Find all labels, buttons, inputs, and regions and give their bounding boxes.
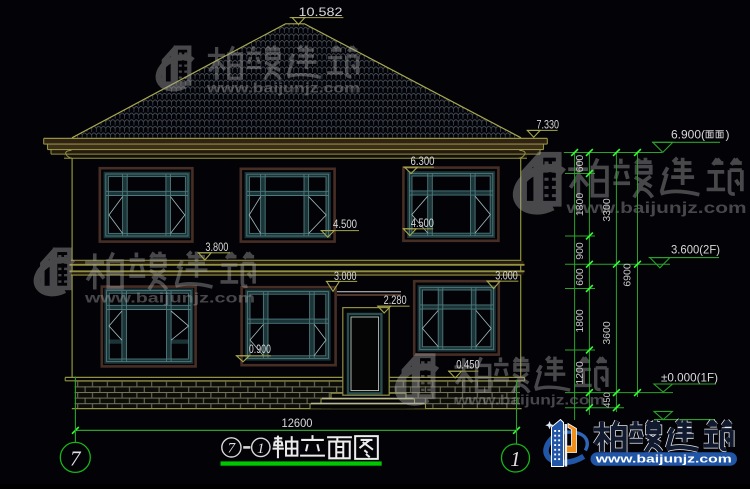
svg-text:4.500: 4.500 xyxy=(333,217,357,231)
svg-text:0.450: 0.450 xyxy=(456,357,480,371)
svg-text:3.000: 3.000 xyxy=(334,269,357,283)
svg-text:3.600(2F): 3.600(2F) xyxy=(671,242,720,256)
svg-text:1200: 1200 xyxy=(574,361,586,385)
svg-text:7.330: 7.330 xyxy=(537,118,560,132)
svg-text:4.500: 4.500 xyxy=(411,216,434,230)
svg-text:450: 450 xyxy=(602,392,613,408)
svg-text:600: 600 xyxy=(574,268,586,286)
svg-text:6900: 6900 xyxy=(622,263,634,287)
svg-text:www.baijunjz.com: www.baijunjz.com xyxy=(594,454,732,466)
svg-text:600: 600 xyxy=(574,155,586,173)
svg-text:3300: 3300 xyxy=(601,198,613,222)
svg-text:): ) xyxy=(726,128,730,142)
svg-text:1: 1 xyxy=(510,447,521,471)
svg-text:±0.000(1F): ±0.000(1F) xyxy=(661,370,718,384)
svg-text:900: 900 xyxy=(574,242,586,260)
svg-text:1800: 1800 xyxy=(574,193,586,217)
svg-text:1800: 1800 xyxy=(574,309,586,333)
svg-text:3.800: 3.800 xyxy=(205,240,228,254)
svg-text:2.280: 2.280 xyxy=(384,293,407,307)
svg-text:3600: 3600 xyxy=(601,321,613,345)
svg-text:6.900(: 6.900( xyxy=(671,128,705,142)
svg-text:www.baijunjz.com: www.baijunjz.com xyxy=(206,81,360,96)
svg-text:7: 7 xyxy=(70,447,82,471)
svg-text:12600: 12600 xyxy=(282,416,313,430)
svg-text:3.000: 3.000 xyxy=(495,268,518,282)
svg-text:0.900: 0.900 xyxy=(249,342,271,356)
svg-text:6.300: 6.300 xyxy=(411,154,435,168)
svg-text:10.582: 10.582 xyxy=(299,5,343,19)
svg-text:1: 1 xyxy=(257,441,265,457)
svg-text:www.baijunjz.com: www.baijunjz.com xyxy=(454,393,605,408)
svg-text:www.baijunjz.com: www.baijunjz.com xyxy=(84,290,255,306)
svg-text:www.baijunjz.com: www.baijunjz.com xyxy=(565,200,746,217)
